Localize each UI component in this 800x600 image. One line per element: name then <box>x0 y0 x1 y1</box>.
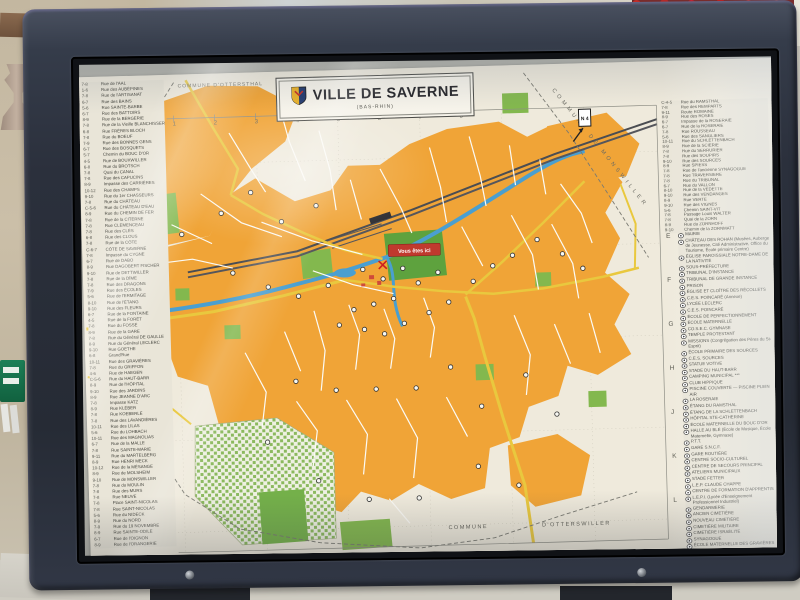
town-crest-icon <box>291 86 308 105</box>
svg-text:Vous êtes ici: Vous êtes ici <box>398 248 431 255</box>
svg-text:N 4: N 4 <box>581 116 589 122</box>
legend-label: CHÂTEAU DES ROHAN (Musées, Auberge de Je… <box>684 236 772 254</box>
glass-pane: Vous êtes ici COMMUNE D'OTTERSTHAL COMMU… <box>79 56 777 555</box>
dispenser-slot <box>3 378 19 384</box>
street-name: Rue de l'ORANGERIE <box>114 541 157 548</box>
street-index-left: 7-8 Rue de l'AAL 1-6 Rue des AUBÉPINES 7… <box>81 80 176 549</box>
legend-label: CHAMP DE FOIRE <box>693 549 732 556</box>
legend-entry: ÉCOLE MATERNELLE DES GRAVIÈRES <box>687 541 777 549</box>
map-subtitle: (BAS-RHIN) <box>357 103 394 110</box>
map-title: VILLE DE SAVERNE <box>313 83 460 103</box>
you-are-here-label: Vous êtes ici <box>388 243 440 256</box>
dispenser-slot <box>3 367 19 373</box>
commune-label-otterswiller-left: COMMUNE <box>448 524 488 531</box>
photo-of-town-map-board: Vous êtes ici COMMUNE D'OTTERSTHAL COMMU… <box>0 0 800 600</box>
board-bezel: Vous êtes ici COMMUNE D'OTTERSTHAL COMMU… <box>71 48 785 564</box>
legend-entry: CHAMP DE FOIRE <box>687 547 777 555</box>
frame-screw <box>637 568 646 577</box>
street-index-right: C-4-5 Rue du RAMSTHAL 7-8 Rue des REMPAR… <box>661 98 771 233</box>
grid-ref: 8-9 <box>94 542 114 548</box>
legend-marker-icon <box>687 551 693 556</box>
map-title-cartouche: VILLE DE SAVERNE (BAS-RHIN) <box>275 72 474 122</box>
grid-col-number: 1 <box>173 121 214 128</box>
legend-label: PORT DE PLAISANCE <box>693 555 739 556</box>
legend-label: ÉCOLE MATERNELLE DES GRAVIÈRES <box>692 541 774 549</box>
frame-screw <box>185 570 194 579</box>
legend-list: MAIRIE CHÂTEAU DES ROHAN (Musées, Auberg… <box>678 230 777 556</box>
board-leg <box>560 586 672 600</box>
grid-col-number: 2 <box>214 119 255 126</box>
display-board-frame: Vous êtes ici COMMUNE D'OTTERSTHAL COMMU… <box>22 0 800 590</box>
legend-label: P.T.T. <box>689 440 701 446</box>
map-paper: Vous êtes ici COMMUNE D'OTTERSTHAL COMMU… <box>79 58 777 556</box>
leaflet-dispenser <box>0 360 25 402</box>
legend-entry: PORT DE PLAISANCE <box>687 554 777 556</box>
